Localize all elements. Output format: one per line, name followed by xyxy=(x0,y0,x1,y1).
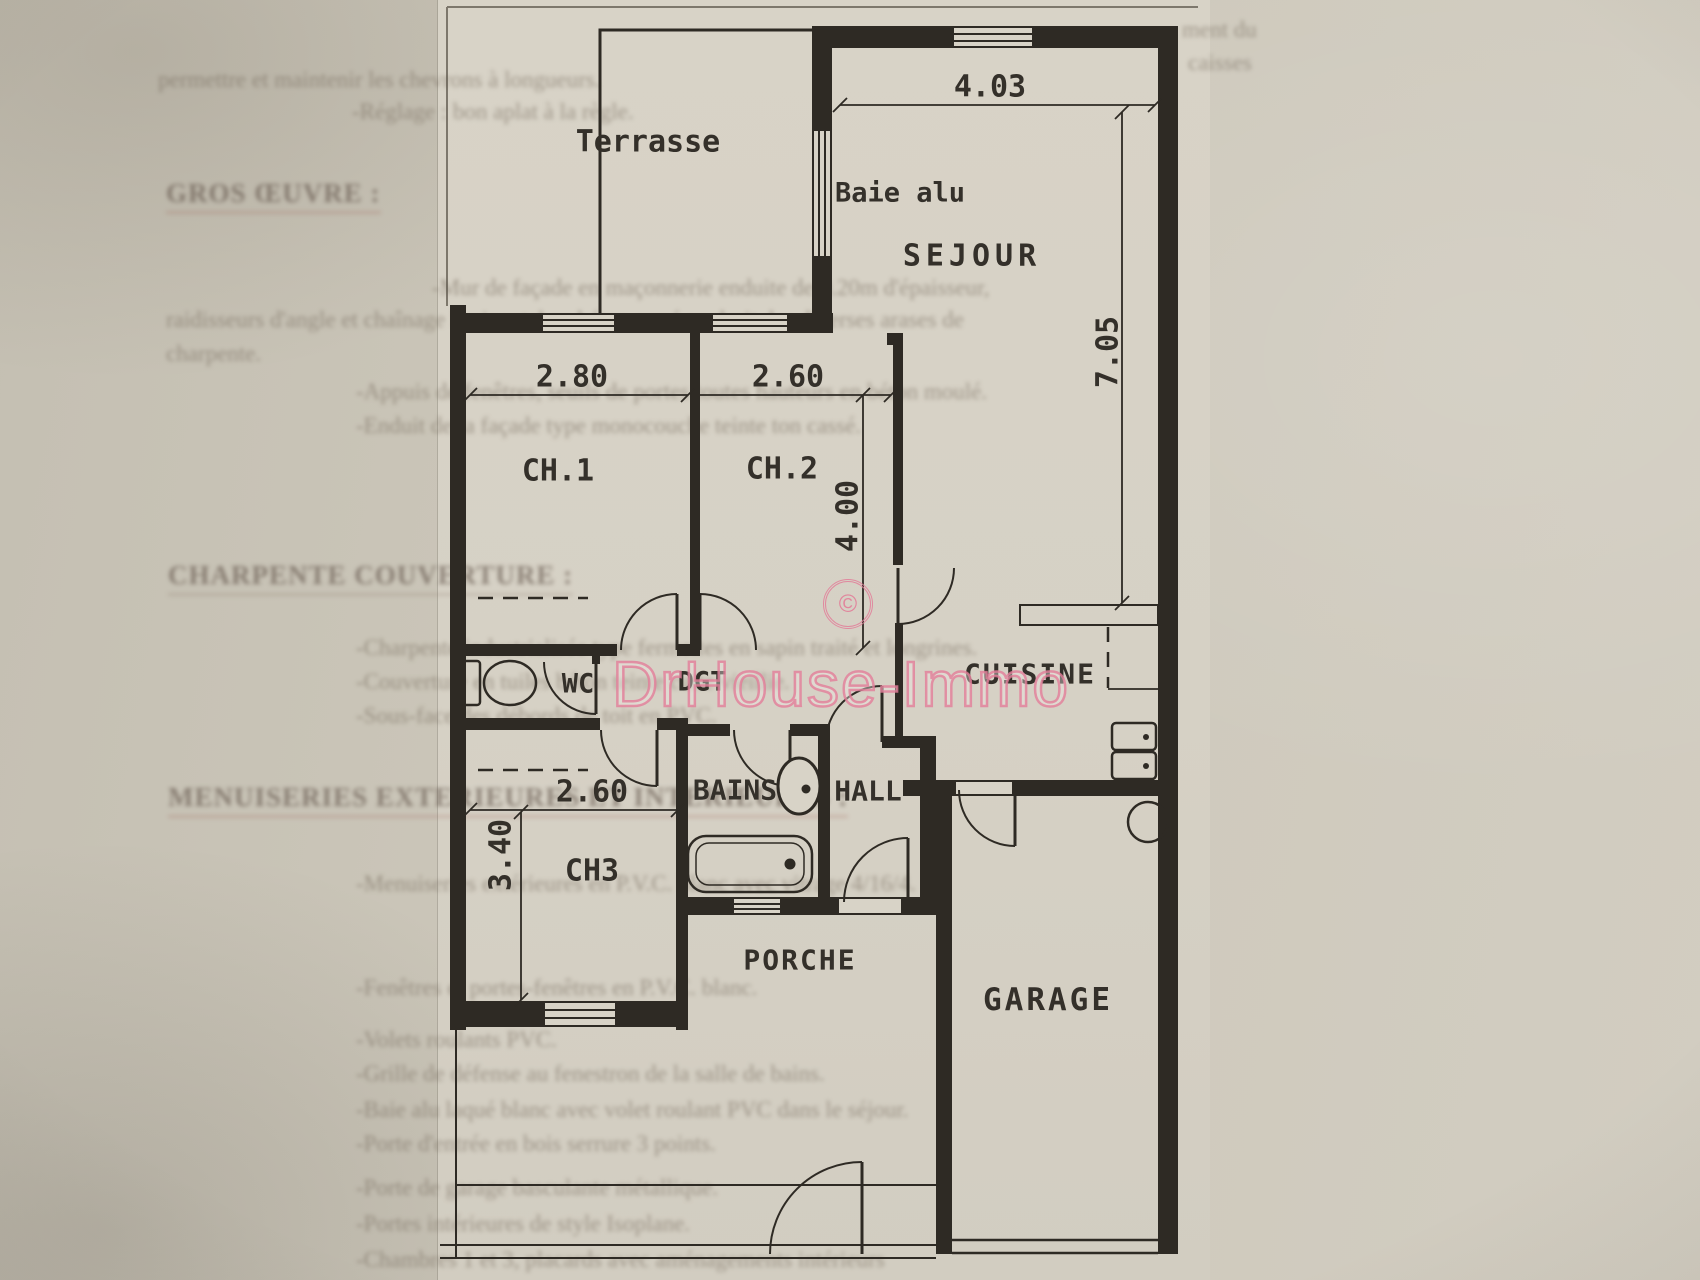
washbasin-icon xyxy=(778,758,820,814)
floor-plan-drawing xyxy=(0,0,1700,1280)
entry-door xyxy=(844,838,908,902)
ch2-door xyxy=(700,594,756,650)
bathtub-icon xyxy=(688,836,812,892)
entry-door-threshold xyxy=(838,898,902,914)
ch2-window xyxy=(712,314,788,332)
copyright-icon: © xyxy=(823,579,873,629)
dim-line-4-03 xyxy=(833,98,1162,112)
sejour-door xyxy=(898,568,954,624)
kitchen-door-threshold xyxy=(955,781,1013,795)
ch1-window xyxy=(542,314,615,332)
wc-door xyxy=(544,662,596,714)
toilet-icon xyxy=(462,661,536,705)
dim-line-3-40 xyxy=(514,805,528,1007)
ch1-door xyxy=(621,594,677,650)
terrace-outline xyxy=(600,30,813,316)
bains-window xyxy=(733,898,781,914)
dim-line-2-60-ch3 xyxy=(463,803,685,817)
scanned-document-page: GROS ŒUVRE :CHARPENTE COUVERTURE :MENUIS… xyxy=(0,0,1700,1280)
dim-line-2-80 xyxy=(463,388,695,402)
dim-line-7-05 xyxy=(1115,105,1129,610)
baie-alu-window xyxy=(813,130,831,257)
ch3-door xyxy=(601,730,657,786)
windows xyxy=(542,27,1033,1026)
sejour-top-window xyxy=(953,27,1033,47)
garage-door xyxy=(952,1240,1158,1253)
ch3-window xyxy=(544,1002,616,1026)
kitchen-garage-door xyxy=(959,790,1015,846)
pedestrian-gate xyxy=(770,1162,862,1254)
agency-watermark: DrHouse-Immo xyxy=(612,647,1070,721)
kitchen-counter xyxy=(1020,605,1158,625)
kitchen-sink-icon xyxy=(1112,723,1156,779)
